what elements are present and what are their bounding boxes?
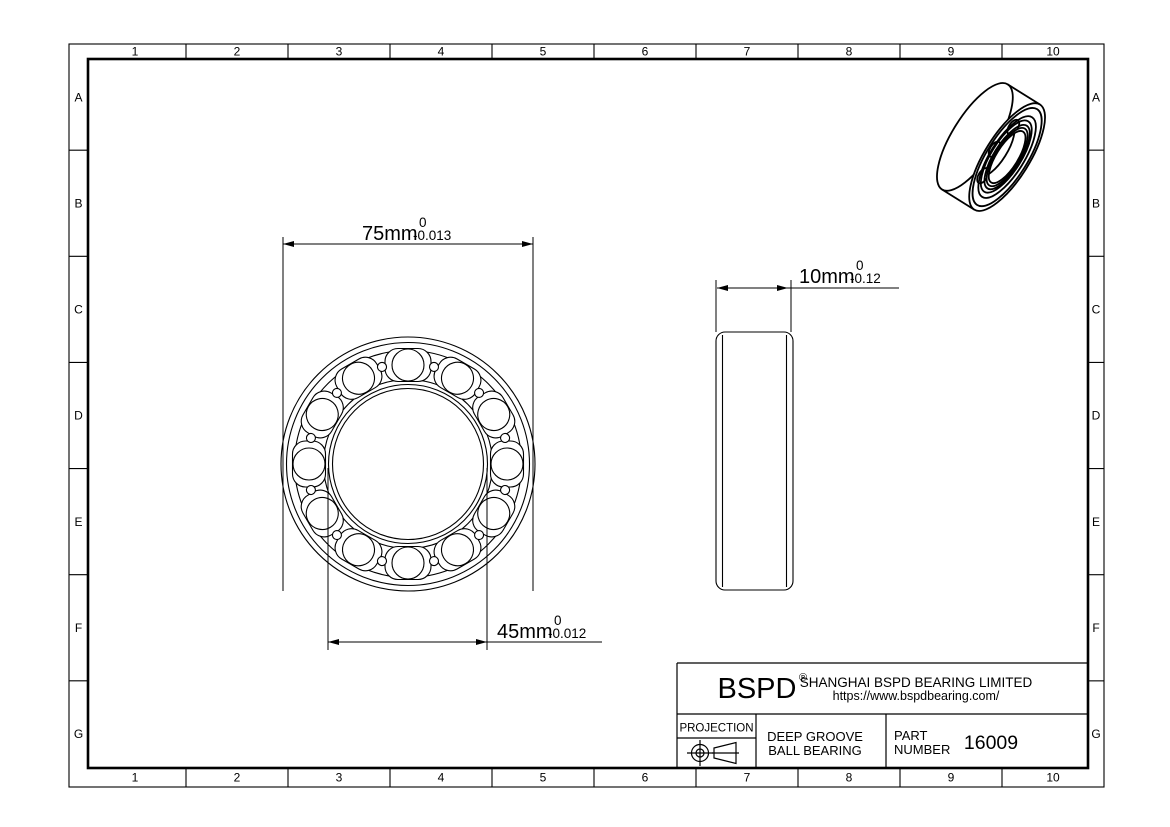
arrowhead-right — [476, 639, 487, 645]
grid-column-label: 3 — [336, 45, 343, 59]
grid-row-label: E — [74, 515, 82, 529]
first-angle-projection-icon — [687, 740, 739, 766]
dimension-value: 75mm — [362, 223, 418, 245]
grid-row-label: F — [75, 621, 82, 635]
grid-row-label: C — [1092, 303, 1101, 317]
side-view-bearing — [716, 332, 793, 590]
grid-column-label: 1 — [132, 45, 139, 59]
grid-row-label: B — [1092, 196, 1100, 210]
title-block: BSPD ® SHANGHAI BSPD BEARING LIMITED htt… — [677, 663, 1088, 768]
grid-column-label: 4 — [438, 771, 445, 785]
grid-column-label: 9 — [948, 45, 955, 59]
arrowhead-right — [522, 241, 533, 247]
grid-labels-top: 12345678910 — [132, 45, 1060, 59]
cage-pocket-with-ball — [491, 441, 524, 487]
grid-column-label: 8 — [846, 771, 853, 785]
grid-column-label: 2 — [234, 771, 241, 785]
grid-column-label: 5 — [540, 771, 547, 785]
cage-pocket-with-ball — [385, 547, 431, 580]
grid-row-label: F — [1092, 621, 1099, 635]
grid-row-label: G — [1091, 727, 1100, 741]
dimension-width: 10mm 0 -0.12 — [716, 258, 899, 332]
grid-column-label: 6 — [642, 771, 649, 785]
cage-pocket-with-ball — [293, 441, 326, 487]
product-type-line1: DEEP GROOVE — [767, 729, 863, 744]
tolerance-lower: -0.012 — [548, 626, 586, 641]
product-type-line2: BALL BEARING — [768, 743, 861, 758]
grid-column-label: 4 — [438, 45, 445, 59]
grid-row-label: D — [1092, 409, 1101, 423]
projection-label: PROJECTION — [679, 723, 753, 735]
bore-circle — [333, 389, 484, 540]
grid-column-label: 7 — [744, 45, 751, 59]
arrowhead-left — [328, 639, 339, 645]
side-view-outline — [716, 332, 793, 590]
grid-labels-bottom: 12345678910 — [132, 771, 1060, 785]
grid-column-label: 7 — [744, 771, 751, 785]
drawing-sheet: 12345678910 12345678910 ABCDEFG ABCDEFG … — [0, 0, 1170, 827]
inner-ring-shoulder-circle — [324, 380, 493, 549]
arrowhead-left — [283, 241, 294, 247]
cage-balls-rivets — [293, 349, 524, 580]
isometric-view-bearing — [923, 73, 1059, 222]
dimension-value: 10mm — [799, 266, 855, 288]
arrowhead-left — [717, 285, 728, 291]
grid-column-label: 5 — [540, 45, 547, 59]
part-label-line2: NUMBER — [894, 742, 950, 757]
grid-column-label: 10 — [1046, 771, 1060, 785]
grid-row-label: C — [74, 303, 83, 317]
grid-row-label: A — [74, 90, 82, 104]
dimension-value: 45mm — [497, 621, 553, 643]
engineering-drawing: 12345678910 12345678910 ABCDEFG ABCDEFG … — [0, 0, 1170, 827]
grid-column-label: 8 — [846, 45, 853, 59]
grid-column-label: 2 — [234, 45, 241, 59]
grid-labels-right: ABCDEFG — [1091, 90, 1100, 741]
website-url: https://www.bspdbearing.com/ — [833, 689, 1000, 703]
grid-column-label: 9 — [948, 771, 955, 785]
grid-row-label: G — [74, 727, 83, 741]
part-number-value: 16009 — [964, 732, 1018, 754]
part-label-line1: PART — [894, 728, 928, 743]
front-view-bearing — [281, 337, 535, 591]
grid-column-label: 3 — [336, 771, 343, 785]
grid-row-label: A — [1092, 90, 1100, 104]
grid-column-label: 10 — [1046, 45, 1060, 59]
grid-column-label: 1 — [132, 771, 139, 785]
logo-text: BSPD — [718, 673, 797, 705]
grid-labels-left: ABCDEFG — [74, 90, 83, 741]
grid-column-label: 6 — [642, 45, 649, 59]
grid-row-label: B — [74, 196, 82, 210]
bore-chamfer-circle — [329, 385, 488, 544]
company-name: SHANGHAI BSPD BEARING LIMITED — [800, 675, 1033, 690]
tolerance-lower: -0.013 — [413, 228, 451, 243]
arrowhead-right — [777, 285, 788, 291]
tolerance-lower: -0.12 — [850, 271, 881, 286]
grid-row-label: E — [1092, 515, 1100, 529]
grid-row-label: D — [74, 409, 83, 423]
cage-pocket-with-ball — [385, 349, 431, 382]
